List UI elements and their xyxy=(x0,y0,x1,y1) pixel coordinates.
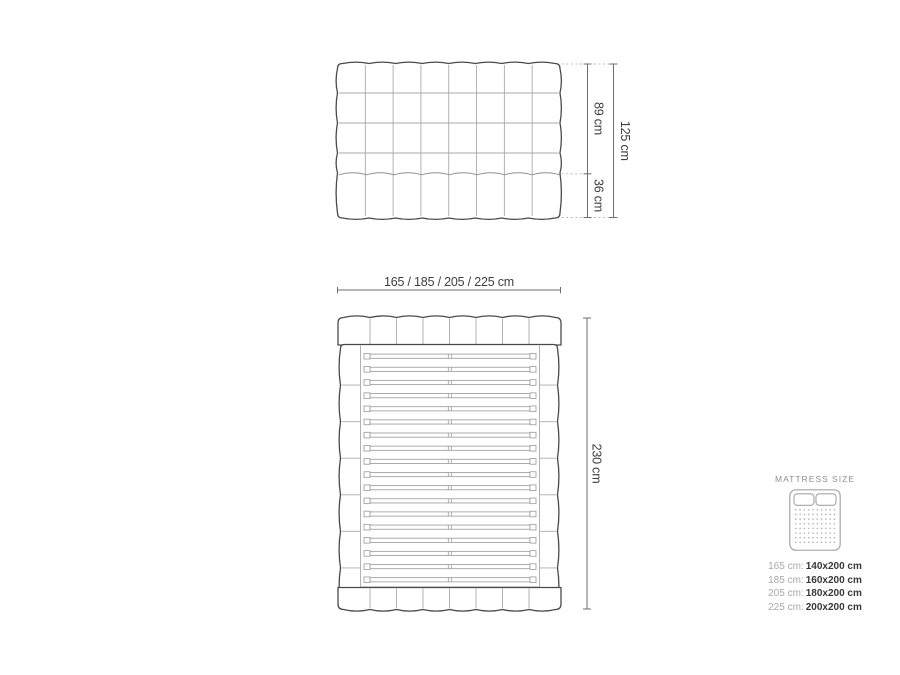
plan-width-label: 165 / 185 / 205 / 225 cm xyxy=(384,275,514,289)
headboard-front-view: 89 cm 36 cm 125 cm xyxy=(336,62,632,219)
bed-top-geometry xyxy=(338,287,592,611)
bed-dimensions-page: 89 cm 36 cm 125 cm 165 / 185 / 205 / 225… xyxy=(0,0,900,675)
pillow-right-icon xyxy=(816,494,836,506)
legend-row: 185 cm:160x200 cm xyxy=(757,574,873,588)
front-lower-height-label: 36 cm xyxy=(592,179,606,212)
frame-size-label: 165 cm: xyxy=(768,561,804,572)
legend-title: MATTRESS SIZE xyxy=(757,474,873,484)
front-total-height-label: 125 cm xyxy=(618,121,632,161)
frame-size-label: 205 cm: xyxy=(768,588,804,599)
mattress-size-legend: MATTRESS SIZE 165 cm:140x200 cm 185 cm:1… xyxy=(757,474,873,614)
mattress-size-value: 160x200 cm xyxy=(806,575,862,586)
mattress-size-value: 200x200 cm xyxy=(806,602,862,613)
front-upper-height-label: 89 cm xyxy=(592,102,606,135)
headboard-front-geometry xyxy=(336,62,617,219)
legend-row: 205 cm:180x200 cm xyxy=(757,587,873,601)
frame-size-label: 225 cm: xyxy=(768,602,804,613)
legend-row: 225 cm:200x200 cm xyxy=(757,601,873,615)
frame-size-label: 185 cm: xyxy=(768,575,804,586)
bed-top-view: 165 / 185 / 205 / 225 cm 230 cm xyxy=(338,275,604,611)
mattress-icon xyxy=(789,489,841,551)
legend-row: 165 cm:140x200 cm xyxy=(757,560,873,574)
mattress-size-value: 180x200 cm xyxy=(806,588,862,599)
mattress-size-value: 140x200 cm xyxy=(806,561,862,572)
pillow-left-icon xyxy=(794,494,814,506)
plan-length-label: 230 cm xyxy=(590,444,604,484)
legend-rows: 165 cm:140x200 cm 185 cm:160x200 cm 205 … xyxy=(757,560,873,614)
